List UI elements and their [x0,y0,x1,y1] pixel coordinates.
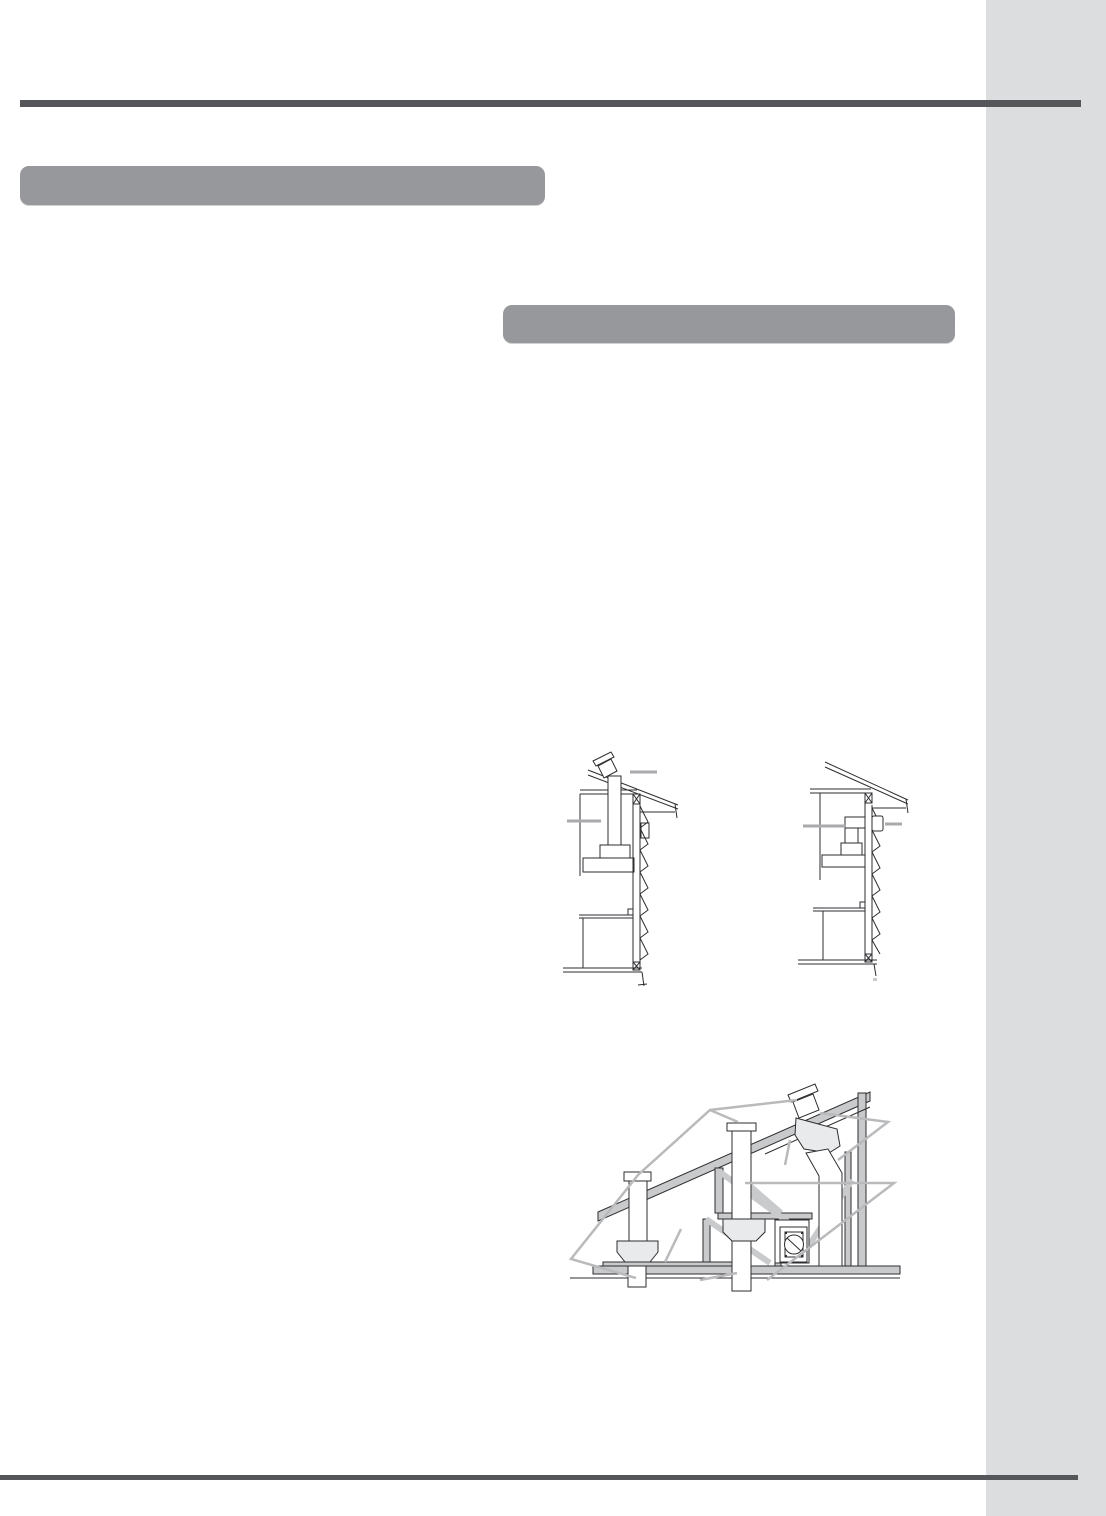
section-header-bar-1 [20,166,545,205]
section-header-bar-2 [503,305,955,343]
bottom-rule [0,1475,1078,1480]
page-edge-column [986,0,1106,1516]
wall-top-blocking-x [633,794,640,804]
inner-post [845,1152,851,1266]
left-jack-base [617,1241,658,1262]
wall-cap [872,816,883,831]
rim-joist-x [865,954,872,962]
center-jack-duct [732,1131,751,1219]
top-rule [20,100,1081,107]
right-wall-lines [633,794,640,962]
foundation-tick [874,964,876,976]
left-jack-duct [629,1181,647,1241]
roof-venting-cross-section-diagram [552,748,702,993]
center-jack-flange [727,1123,756,1131]
duct-transition [600,845,630,858]
ground-dot [873,978,877,981]
ceiling-plate [603,1262,742,1266]
stud-left [703,1219,710,1266]
right-jack-duct [806,1149,842,1266]
ceiling-lines [810,789,871,793]
right-wall-lines [865,793,872,960]
duct-transition [841,843,862,855]
hood-canopy [583,858,634,872]
foundation-tick [638,972,647,986]
roof-slope-lines [825,762,908,804]
roof-jack-installation-diagram [545,1072,965,1302]
rim-joist-x [633,962,640,970]
center-jack-lower-duct [732,1241,751,1291]
vertical-duct [608,776,621,845]
manual-page [0,0,1106,1516]
counter-lines [813,902,865,911]
wall-bracket [641,823,649,838]
wall-top-blocking-x [865,793,872,803]
floor-lines [563,968,642,972]
duct-riser [845,828,858,843]
horizontal-duct [845,817,865,828]
counter-lines [579,909,633,918]
wall-venting-cross-section-diagram [786,748,916,983]
center-jack-base [723,1219,765,1241]
hood-canopy [822,855,865,867]
